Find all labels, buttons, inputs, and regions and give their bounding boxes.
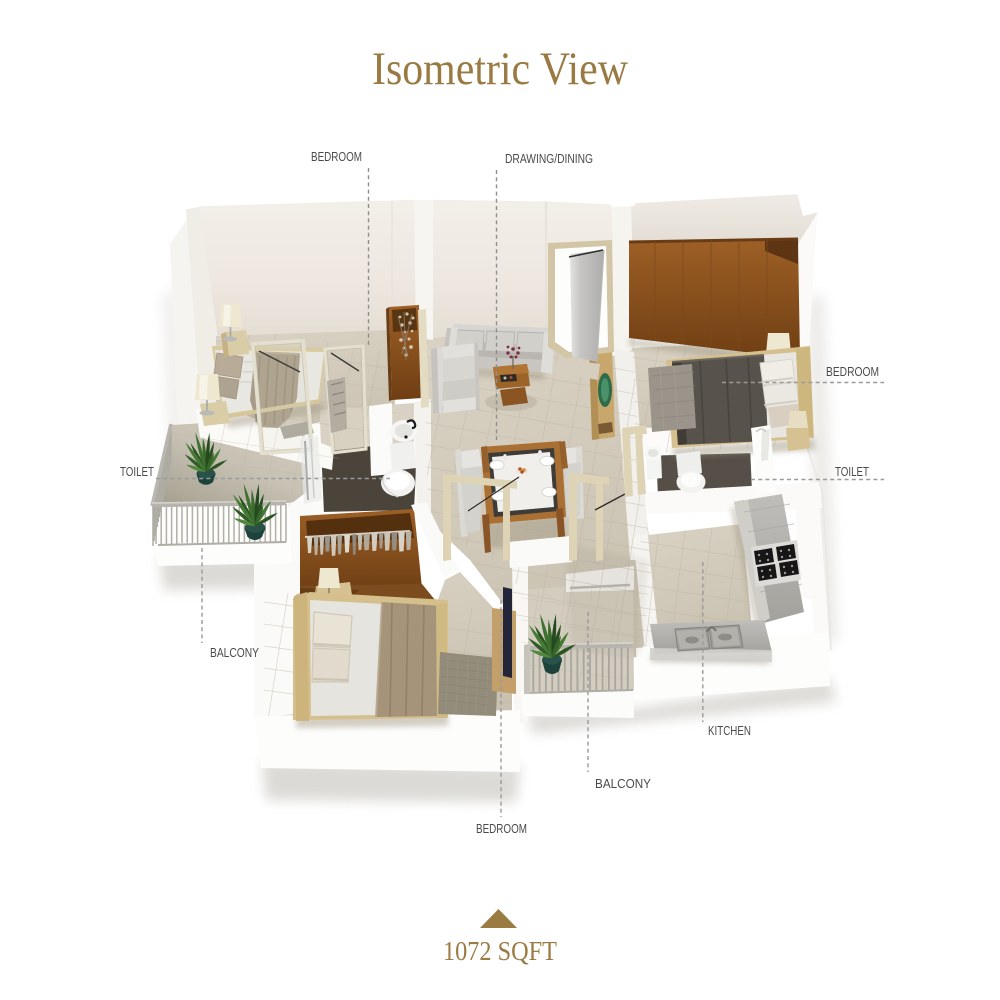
svg-text:BEDROOM: BEDROOM: [311, 150, 362, 164]
svg-text:1072 SQFT: 1072 SQFT: [443, 936, 557, 966]
svg-text:TOILET: TOILET: [835, 465, 869, 479]
svg-text:DRAWING/DINING: DRAWING/DINING: [505, 152, 593, 166]
svg-text:Isometric View: Isometric View: [372, 43, 628, 95]
svg-text:KITCHEN: KITCHEN: [708, 724, 751, 738]
svg-text:TOILET: TOILET: [120, 465, 154, 479]
svg-text:BEDROOM: BEDROOM: [476, 822, 527, 836]
svg-text:BALCONY: BALCONY: [595, 777, 652, 791]
svg-text:BALCONY: BALCONY: [210, 646, 260, 660]
svg-text:BEDROOM: BEDROOM: [826, 365, 879, 379]
